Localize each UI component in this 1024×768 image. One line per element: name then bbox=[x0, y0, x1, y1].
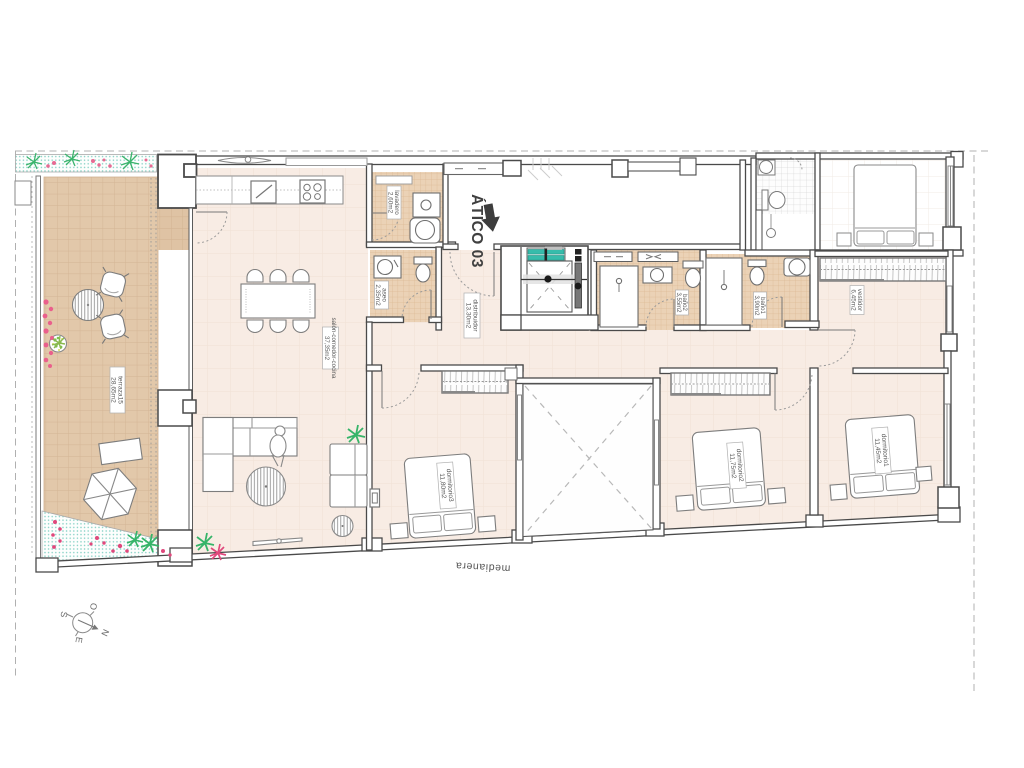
svg-text:distribuidor: distribuidor bbox=[472, 299, 479, 332]
svg-text:13,30m2: 13,30m2 bbox=[465, 303, 472, 329]
svg-text:3,90m2: 3,90m2 bbox=[753, 295, 759, 316]
svg-text:ÁTICO 03: ÁTICO 03 bbox=[468, 194, 485, 268]
svg-text:28,65m2: 28,65m2 bbox=[110, 377, 117, 403]
svg-text:6,45m2: 6,45m2 bbox=[850, 289, 857, 311]
svg-text:3,55m2: 3,55m2 bbox=[675, 292, 681, 313]
svg-text:2,35m2: 2,35m2 bbox=[374, 284, 381, 306]
svg-text:37,35m2: 37,35m2 bbox=[323, 336, 330, 361]
svg-text:salón-comedor-cocina: salón-comedor-cocina bbox=[330, 318, 337, 379]
svg-text:2,60m2: 2,60m2 bbox=[387, 192, 394, 214]
svg-text:terraza15: terraza15 bbox=[117, 376, 124, 404]
